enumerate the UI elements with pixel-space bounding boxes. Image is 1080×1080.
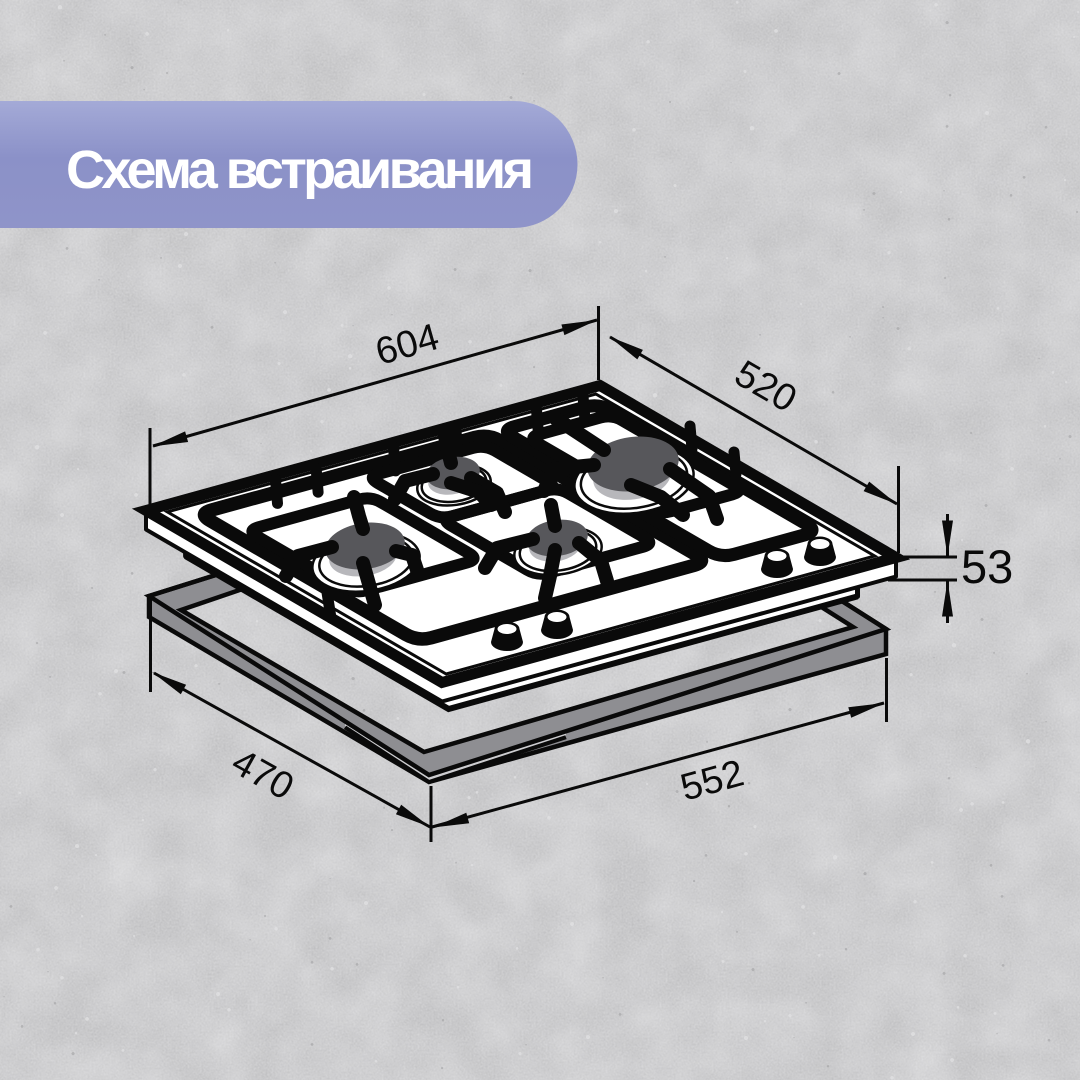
svg-text:Схема встраивания: Схема встраивания [66, 140, 534, 200]
svg-text:53: 53 [961, 540, 1013, 593]
